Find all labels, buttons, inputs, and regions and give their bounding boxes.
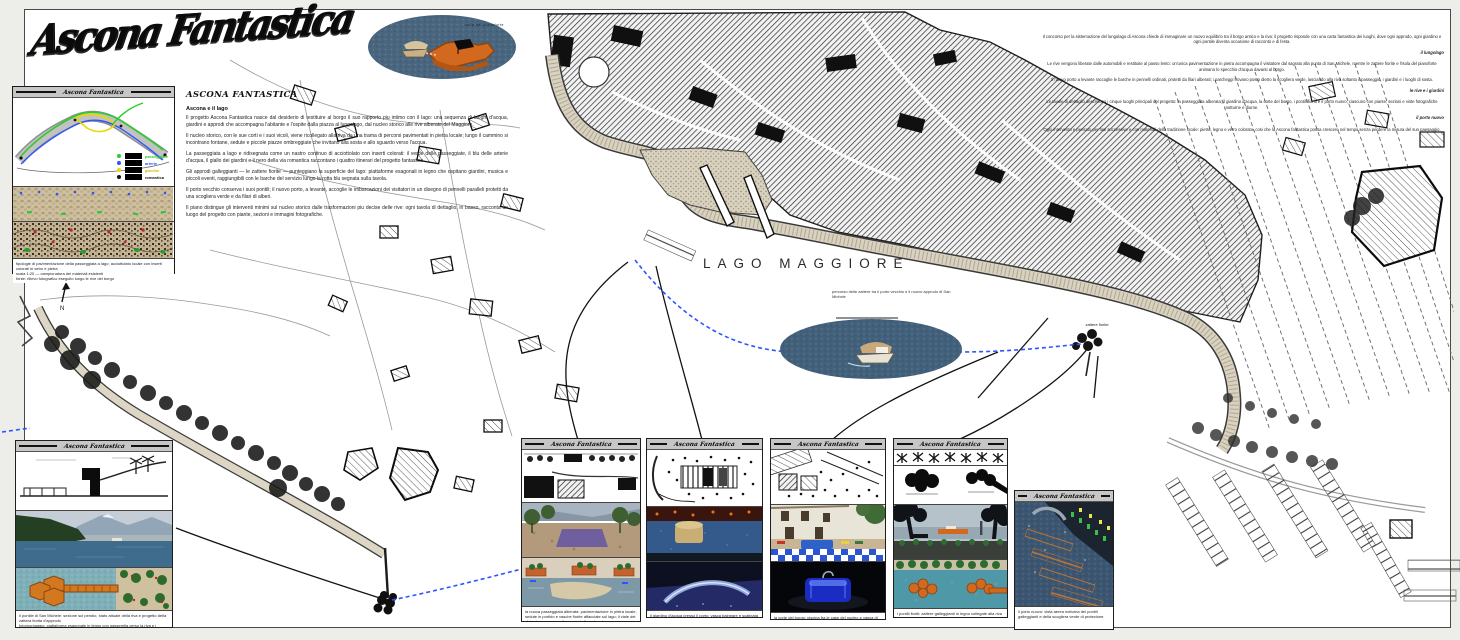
inset-header: Ascona Fantastica [13,87,174,98]
legend-swatch [125,174,142,180]
detail-panel-new-port: Ascona Fantastica [1014,490,1114,630]
render-lit-stair [647,562,762,611]
render-planters [522,558,640,607]
route-map: passeggiate arterie giardini romantica [13,98,174,187]
legend-label: romantica [145,175,168,180]
boat-slips [644,230,696,261]
description-lead: Ascona e il lago [186,106,508,112]
mini-logo: Ascona Fantastica [673,441,735,448]
description-paragraph: Il nucleo storico, con le sue corti e i … [186,133,508,146]
svg-text:N: N [60,306,64,312]
boat-rendering [778,317,964,381]
raft-cluster [1072,329,1103,376]
presentation-board: N Ascona Fantastica [0,0,1460,640]
legend-swatch [125,153,142,159]
competition-text: Il concorso per la sistemazione del lung… [1040,34,1444,137]
description-heading: ASCONA FANTASTICA [186,90,508,100]
description-paragraph: Il progetto Ascona Fantastica nasce dal … [186,115,508,128]
legend-dot-green [117,154,121,158]
panel-caption: il pontile di San Michele: sezione sul p… [16,611,172,628]
raft-cluster-label: zattere fiorite [1062,322,1132,327]
pier-plan [894,466,1007,505]
render-courtyard-pool [771,505,885,562]
competition-paragraph: Le rive vengono liberate dalle automobil… [1040,61,1444,72]
detail-panel-borgo-court: Ascona Fantastica [770,438,886,620]
plan-drawing [647,450,762,507]
panel-caption: la nuova passeggiata alberata: pavimenta… [522,607,640,622]
panel-caption: il porto nuovo: vista aerea notturna dei… [1015,607,1113,629]
competition-paragraph: Il concorso per la sistemazione del lung… [1040,34,1444,45]
header-rule [16,91,56,93]
inset-caption: tipologie di pavimentazione della passeg… [13,259,174,283]
legend-label: passeggiate [145,154,168,159]
materials-inset: Ascona Fantastica passeggiate [12,86,175,274]
header-rule [131,91,171,93]
legend-dot-yellow [117,168,121,172]
legend-swatch [125,160,142,166]
mini-logo: Ascona Fantastica [63,443,125,450]
island-label: isola del pianoforte [465,23,504,27]
detail-panel-san-michele: Ascona Fantastica [15,440,173,628]
pavement-sample-2 [13,222,174,259]
legend-dot-blue [117,161,121,165]
description-paragraph: Il porto vecchio conserva i suoi pontili… [186,187,508,200]
mini-logo: Ascona Fantastica [797,441,859,448]
plan-drawing [771,450,885,505]
legend-label: giardini [145,168,168,173]
site-photo [16,511,172,568]
pier-plan-montage [16,568,172,611]
detail-panel-flower-piers: Ascona Fantastica [893,438,1008,618]
competition-paragraph: Le tavole di dettaglio descrivono i cinq… [1040,99,1444,110]
description-paragraph: La passeggiata a lago e ridisegnata come… [186,151,508,164]
signature-line: le rive e i giardini [1040,88,1444,93]
description-paragraph: Il piano distingue gli interventi minimi… [186,205,508,218]
render-glass-tub [771,562,885,613]
lake-note: percorso delle zattere tra il porto vecc… [832,289,962,299]
mini-logo: Ascona Fantastica [550,441,612,448]
render-street [522,503,640,558]
competition-paragraph: Ogni intervento e pensato per fasi succe… [1040,127,1444,132]
palm-row-plan [894,450,1007,466]
detail-panel-promenade: Ascona Fantastica [521,438,641,622]
route-legend: passeggiate arterie giardini romantica [117,153,168,180]
section-drawing [16,452,172,511]
render-lakefront-trees [894,505,1007,560]
checker-strip [771,549,885,561]
panel-caption: il giardino d'acqua presso il porto: vas… [647,611,762,618]
render-floating-piers [894,560,1007,609]
lake-label: LAGO MAGGIORE [703,256,910,271]
render-pool-evening [647,507,762,562]
signature-line: il lungolago [1040,50,1444,55]
east-building [1352,166,1442,266]
legend-dot-black [117,175,121,179]
detail-panel-water-garden: Ascona Fantastica [646,438,763,618]
description-paragraph: Gli approdi galleggianti — le zattere fi… [186,169,508,182]
plan-drawing [522,450,640,503]
mini-logo: Ascona Fantastica [62,89,124,96]
render-marina-aerial [1015,502,1113,607]
competition-paragraph: Il nuovo porto a levante raccoglie le ba… [1040,77,1444,82]
panel-caption: i pontili fioriti: zattere galleggianti … [894,609,1007,618]
panel-caption: la corte del borgo: piscina fra le case … [771,613,885,620]
mini-logo: Ascona Fantastica [1033,493,1095,500]
island-rendering: isola del pianoforte [366,13,518,81]
san-michele-pier [374,548,398,615]
signature-line: il porto nuovo [1040,115,1444,120]
pavement-sample-1 [13,187,174,222]
mini-logo: Ascona Fantastica [919,441,981,448]
legend-swatch [125,167,142,173]
legend-label: arterie [145,161,168,166]
project-description: ASCONA FANTASTICA Ascona e il lago Il pr… [186,90,508,223]
